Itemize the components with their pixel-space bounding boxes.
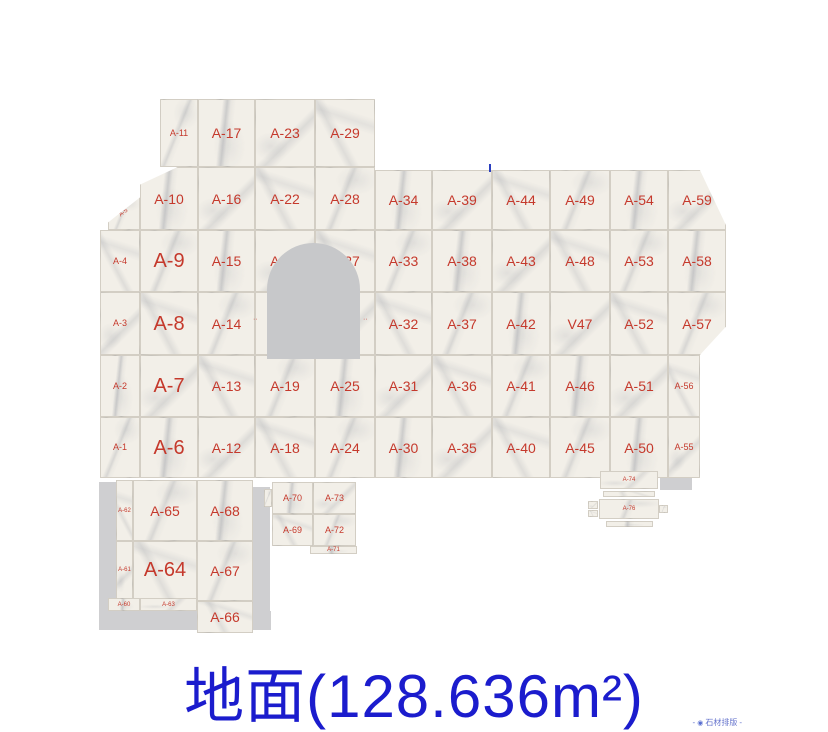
tile-label: A-38	[447, 254, 477, 268]
tile-a-44: A-44	[492, 170, 550, 230]
tile-label: A-31	[389, 379, 419, 393]
tile-a-24: A-24	[315, 417, 375, 478]
floor-plan: A-11A-17A-23A-29A-5A-10A-16A-22A-28A-34A…	[0, 0, 828, 732]
tile-a-9: A-9	[140, 230, 198, 292]
tile-a-67: A-67	[197, 541, 253, 601]
tile-a-68: A-68	[197, 480, 253, 541]
tile-v47: V47	[550, 292, 610, 355]
tile-a-56: A-56	[668, 355, 700, 417]
tile-label: A-72	[325, 526, 344, 535]
tile-a-37: A-37	[432, 292, 492, 355]
tile-label: A-55	[674, 443, 693, 452]
tile-a-76: A-76	[599, 499, 659, 519]
tile-a-11: A-11	[160, 99, 198, 167]
tile-a-69: A-69	[272, 514, 313, 546]
tile-label: A-14	[212, 317, 242, 331]
tile-a-59: A-59	[668, 170, 726, 230]
tile-piece	[606, 521, 653, 527]
tile-label: A-1	[113, 443, 127, 452]
tile-label: A-45	[565, 441, 595, 455]
tile-a-55: A-55	[668, 417, 700, 478]
tile-label: A-36	[447, 379, 477, 393]
tile-a-22: A-22	[255, 167, 315, 230]
tile-a-62: A-62	[116, 480, 133, 541]
tile-label: A-67	[210, 564, 240, 578]
tile-label: A-70	[283, 494, 302, 503]
tile-label: A-64	[144, 560, 186, 580]
tile-a-34: A-34	[375, 170, 432, 230]
tile-label: A-34	[389, 193, 419, 207]
tile-a-74: A-74	[600, 471, 658, 489]
tile-label: A-2	[113, 382, 127, 391]
stone-layout-image: A-11A-17A-23A-29A-5A-10A-16A-22A-28A-34A…	[0, 0, 828, 732]
tile-a-60: A-60	[108, 598, 140, 611]
tile-label: A-52	[624, 317, 654, 331]
tile-a-35: A-35	[432, 417, 492, 478]
tile-label: A-17	[212, 126, 242, 140]
tile-a-3: A-3	[100, 292, 140, 355]
tile-label: A-57	[682, 317, 712, 331]
tile-a-49: A-49	[550, 170, 610, 230]
tile-piece	[588, 501, 598, 509]
tile-label: A-3	[113, 319, 127, 328]
tile-a-43: A-43	[492, 230, 550, 292]
tile-label: A-28	[330, 192, 360, 206]
tile-a-5: A-5	[108, 196, 140, 230]
tile-label: A-51	[624, 379, 654, 393]
tile-label: A-49	[565, 193, 595, 207]
tile-a-32: A-32	[375, 292, 432, 355]
tile-piece	[264, 489, 272, 507]
tile-a-54: A-54	[610, 170, 668, 230]
partial-label-mark: ··	[253, 316, 258, 323]
tile-a-58: A-58	[668, 230, 726, 292]
tile-a-53: A-53	[610, 230, 668, 292]
tile-a-19: A-19	[255, 355, 315, 417]
tile-label: A-35	[447, 441, 477, 455]
tile-a-16: A-16	[198, 167, 255, 230]
tile-a-51: A-51	[610, 355, 668, 417]
tile-a-65: A-65	[133, 480, 197, 541]
tile-a-42: A-42	[492, 292, 550, 355]
tile-label: A-18	[270, 441, 300, 455]
tile-piece	[603, 491, 655, 497]
tile-label: A-68	[210, 504, 240, 518]
tile-label: V47	[568, 317, 593, 331]
tile-a-71: A-71	[310, 546, 357, 554]
tile-a-72: A-72	[313, 514, 356, 546]
tile-label: A-41	[506, 379, 536, 393]
tile-a-18: A-18	[255, 417, 315, 478]
tile-label: A-39	[447, 193, 477, 207]
tile-a-33: A-33	[375, 230, 432, 292]
tile-a-40: A-40	[492, 417, 550, 478]
tile-label: A-53	[624, 254, 654, 268]
tile-a-63: A-63	[140, 598, 197, 611]
tile-label: A-6	[153, 438, 184, 458]
tile-label: A-74	[623, 477, 636, 483]
tile-label: A-4	[113, 257, 127, 266]
partial-label-mark: ··	[363, 316, 368, 323]
watermark-dash-left: -	[693, 718, 696, 727]
tile-a-7: A-7	[140, 355, 198, 417]
tile-label: A-8	[153, 314, 184, 334]
tile-label: A-11	[170, 129, 188, 138]
tile-a-8: A-8	[140, 292, 198, 355]
blue-tick-marker	[489, 164, 491, 172]
tile-a-15: A-15	[198, 230, 255, 292]
tile-a-2: A-2	[100, 355, 140, 417]
tile-label: A-10	[154, 192, 184, 206]
tile-a-17: A-17	[198, 99, 255, 167]
tile-label: A-54	[624, 193, 654, 207]
tile-label: A-66	[210, 610, 240, 624]
tile-label: A-76	[623, 506, 636, 512]
tile-label: A-23	[270, 126, 300, 140]
tile-label: A-62	[118, 508, 131, 514]
tile-label: A-59	[682, 193, 712, 207]
tile-a-39: A-39	[432, 170, 492, 230]
tile-a-46: A-46	[550, 355, 610, 417]
tile-label: A-25	[330, 379, 360, 393]
tile-label: A-40	[506, 441, 536, 455]
tile-piece	[659, 505, 668, 513]
watermark-dash-right: -	[739, 718, 742, 727]
tile-label: A-63	[162, 602, 175, 608]
tile-label: A-48	[565, 254, 595, 268]
tile-label: A-24	[330, 441, 360, 455]
tile-a-13: A-13	[198, 355, 255, 417]
tile-a-57: A-57	[668, 292, 726, 355]
tile-label: A-30	[389, 441, 419, 455]
tile-label: A-60	[118, 602, 131, 608]
tile-label: A-33	[389, 254, 419, 268]
watermark-text: 石材排版	[705, 717, 737, 728]
tile-label: A-44	[506, 193, 536, 207]
tile-label: A-13	[212, 379, 242, 393]
tile-a-41: A-41	[492, 355, 550, 417]
tile-label: A-37	[447, 317, 477, 331]
tile-label: A-69	[283, 526, 302, 535]
tile-label: A-56	[674, 382, 693, 391]
tile-label: A-12	[212, 441, 242, 455]
tile-a-36: A-36	[432, 355, 492, 417]
tile-label: A-16	[212, 192, 242, 206]
watermark: - ◉ 石材排版 -	[693, 717, 742, 728]
tile-label: A-7	[153, 376, 184, 396]
tile-label: A-42	[506, 317, 536, 331]
tile-a-50: A-50	[610, 417, 668, 478]
tile-a-30: A-30	[375, 417, 432, 478]
tile-label: A-32	[389, 317, 419, 331]
tile-label: A-58	[682, 254, 712, 268]
tile-a-38: A-38	[432, 230, 492, 292]
tile-a-6: A-6	[140, 417, 198, 478]
tile-a-52: A-52	[610, 292, 668, 355]
tile-label: A-50	[624, 441, 654, 455]
tile-a-28: A-28	[315, 167, 375, 230]
tile-a-29: A-29	[315, 99, 375, 167]
tile-a-10: A-10	[140, 167, 198, 230]
tile-a-66: A-66	[197, 601, 253, 633]
tile-a-25: A-25	[315, 355, 375, 417]
tile-label: A-65	[150, 504, 180, 518]
tile-label: A-29	[330, 126, 360, 140]
tile-a-12: A-12	[198, 417, 255, 478]
tile-label: A-46	[565, 379, 595, 393]
tile-label: A-22	[270, 192, 300, 206]
arch-cutout	[267, 243, 360, 359]
tile-a-1: A-1	[100, 417, 140, 478]
tile-a-23: A-23	[255, 99, 315, 167]
tile-label: A-71	[327, 547, 340, 553]
tile-a-45: A-45	[550, 417, 610, 478]
tile-a-64: A-64	[133, 541, 197, 599]
tile-label: A-43	[506, 254, 536, 268]
watermark-logo-icon: ◉	[697, 719, 703, 727]
tile-label: A-9	[153, 251, 184, 271]
tile-label: A-19	[270, 379, 300, 393]
tile-a-4: A-4	[100, 230, 140, 292]
tile-label: A-5	[118, 208, 129, 218]
tile-a-48: A-48	[550, 230, 610, 292]
tile-a-73: A-73	[313, 482, 356, 514]
tile-label: A-15	[212, 254, 242, 268]
tile-a-61: A-61	[116, 541, 133, 599]
tile-label: A-73	[325, 494, 344, 503]
tile-a-70: A-70	[272, 482, 313, 514]
tile-a-14: A-14	[198, 292, 255, 355]
tile-label: A-61	[118, 567, 131, 573]
tile-a-31: A-31	[375, 355, 432, 417]
tile-piece	[588, 510, 598, 517]
